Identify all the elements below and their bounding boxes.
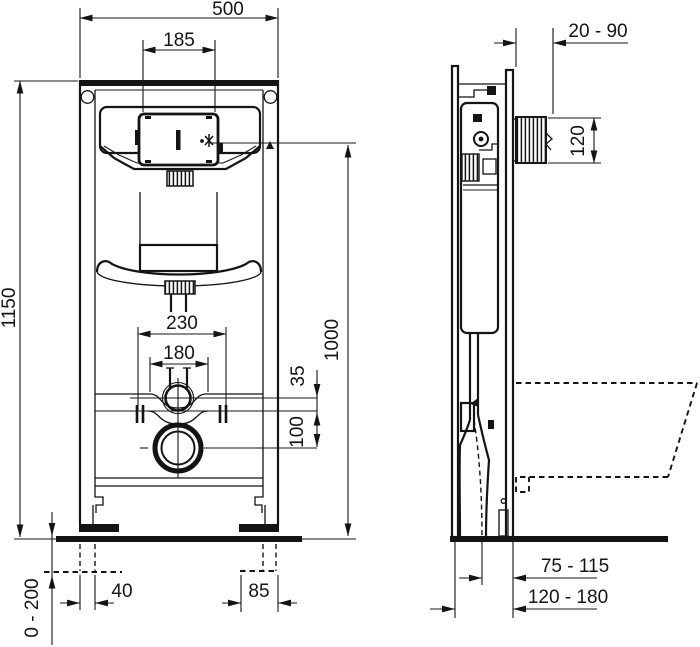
dim-1000-label: 1000	[322, 319, 343, 361]
dim-20-90-label: 20 - 90	[568, 21, 627, 42]
side-floor-bar	[450, 536, 668, 542]
plate-clip-right	[218, 143, 223, 154]
tank-access-box	[140, 245, 217, 271]
plate-slot	[176, 130, 181, 150]
flush-opening-box	[516, 117, 546, 163]
inlet-valve-block	[462, 154, 479, 181]
dim-85-label: 85	[248, 581, 269, 602]
dim-100-label: 100	[287, 416, 308, 448]
plate-clip-left	[135, 130, 140, 145]
dim-120-180-label: 120 - 180	[528, 587, 608, 608]
dim-1150-label: 1150	[0, 288, 20, 329]
dim-40-label: 40	[111, 581, 132, 602]
flush-bend-connector	[167, 171, 193, 186]
technical-drawing-page: 500 185 1150 230 180	[0, 0, 700, 647]
plate-center-dot	[200, 139, 204, 143]
dim-0-200-label: 0 - 200	[22, 578, 43, 637]
dim-230-label: 230	[166, 313, 198, 334]
dim-35-label: 35	[288, 365, 309, 386]
installation-drawing: 500 185 1150 230 180	[0, 0, 700, 647]
side-cistern	[461, 103, 498, 333]
right-foot-plate	[239, 524, 279, 532]
floor-bar	[56, 536, 302, 542]
dim-75-115-label: 75 - 115	[541, 556, 609, 577]
dim-120-label: 120	[568, 125, 589, 157]
flush-plate-box-side	[513, 117, 552, 163]
front-rail	[506, 70, 513, 537]
dim-500-label: 500	[212, 0, 244, 20]
back-rail	[452, 66, 458, 537]
dim-180-label: 180	[163, 343, 195, 364]
dim-185-label: 185	[163, 30, 195, 51]
left-foot-plate	[79, 524, 119, 532]
page-background	[0, 0, 700, 647]
flush-valve-seat	[165, 281, 195, 294]
frame-top-rail	[80, 80, 278, 86]
